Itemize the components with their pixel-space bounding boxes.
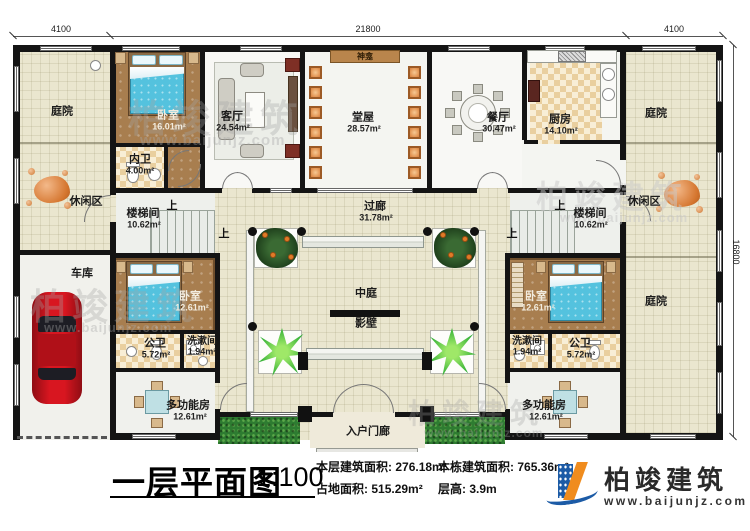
hall-chair [408, 166, 421, 179]
courtyard-divider [13, 142, 110, 144]
stone-dot [696, 206, 703, 213]
window [717, 230, 722, 272]
room-label-multi-l: 多功能房 [166, 401, 210, 412]
window [650, 434, 696, 439]
room-label-hall: 堂屋 [352, 113, 374, 124]
grass-left [218, 416, 300, 444]
hall-chair [309, 66, 322, 79]
fruit-dot [466, 254, 472, 260]
window [717, 60, 722, 102]
dim-top-center: 21800 [355, 24, 380, 34]
dim-top-left: 4100 [51, 24, 71, 34]
sink-icon [198, 356, 208, 366]
room-area-living: 24.54m² [216, 124, 250, 133]
title-underline [110, 496, 315, 498]
watermark-url: www.baijunjz.com [424, 426, 544, 440]
room-area-wash-r: 1.94m² [513, 348, 542, 357]
fruit-dot [448, 252, 454, 258]
column-icon [422, 352, 432, 370]
stair-up-label: 上 [555, 197, 566, 213]
room-area-stair-l: 10.62m² [127, 221, 161, 230]
column-icon [297, 227, 306, 236]
stove-icon [528, 80, 540, 102]
dining-chair [452, 91, 462, 101]
room-area-bedroom2: 12.61m² [175, 304, 209, 313]
room-area-bedroom1: 16.01m² [152, 123, 186, 132]
court-bench-top [302, 236, 424, 248]
nightstand [606, 261, 616, 273]
dining-chair [445, 108, 455, 118]
stat-floor-area: 本层建筑面积: 276.18m² [316, 458, 447, 475]
window [717, 302, 722, 346]
armchair-icon [240, 63, 264, 77]
sink-icon [126, 346, 137, 357]
column-icon [298, 352, 308, 370]
hall-chair [408, 86, 421, 99]
room-label-leisure-r: 休闲区 [628, 197, 661, 208]
garden-stone-icon [34, 176, 70, 203]
room-label-bedroom3: 卧室 [525, 292, 547, 303]
hall-chair [408, 106, 421, 119]
room-area-multi-r: 12.61m² [529, 413, 563, 422]
courtyard-top-left-floor [13, 45, 110, 255]
nightstand [536, 261, 546, 273]
courtyard-right-floor [626, 45, 723, 440]
column-icon [248, 227, 257, 236]
dimension-line-top [13, 36, 723, 37]
vent-hatch [558, 51, 586, 62]
hall-chair [408, 126, 421, 139]
stair-up-label: 上 [167, 197, 178, 213]
room-label-courtyard-br: 庭院 [645, 297, 667, 308]
stair-up-label: 上 [219, 225, 230, 241]
room-label-dining: 餐厅 [487, 113, 509, 124]
side-table [285, 58, 300, 72]
room-label-wash-l: 洗漱间 [187, 337, 217, 347]
room-label-multi-r: 多功能房 [522, 401, 566, 412]
room-label-courtyard-tl: 庭院 [51, 107, 73, 118]
hall-glazed-door [317, 188, 413, 193]
stair-up-label: 上 [507, 225, 518, 241]
kitchen-sink-icon [602, 68, 615, 81]
fruit-dot [440, 232, 446, 238]
stat-footprint-area: 占地面积: 515.29m² [316, 480, 423, 497]
window [14, 364, 19, 406]
room-label-inner-bath: 内卫 [129, 155, 151, 166]
dining-chair [452, 125, 462, 135]
room-area-pub-bath-r: 5.72m² [567, 351, 596, 360]
side-table [285, 144, 300, 158]
room-label-stair-l: 楼梯间 [127, 209, 160, 220]
window [132, 434, 176, 439]
room-label-garage: 车库 [71, 269, 93, 280]
window [122, 46, 180, 51]
floor-plan-page: 神龛 [0, 0, 750, 531]
courtyard-divider [626, 256, 723, 258]
stone-dot [28, 168, 35, 175]
fruit-dot [288, 254, 294, 260]
dining-table-inner [468, 103, 488, 123]
stone-dot [694, 174, 700, 180]
dining-chair [493, 91, 503, 101]
fruit-dot [262, 232, 268, 238]
court-bench-bottom [306, 348, 424, 360]
hall-chair [309, 146, 322, 159]
colonnade-rail-left [246, 230, 254, 412]
window [448, 46, 490, 51]
mp-chair [151, 418, 163, 428]
room-label-wash-r: 洗漱间 [512, 337, 542, 347]
room-label-courtyard-tr: 庭院 [645, 109, 667, 120]
room-area-wash-l: 1.94m² [188, 348, 217, 357]
scale-label: 1:100 [256, 462, 324, 493]
room-area-bedroom3: 12.61m² [521, 304, 555, 313]
column-icon [423, 227, 432, 236]
room-area-stair-r: 10.62m² [574, 221, 608, 230]
room-label-leisure-l: 休闲区 [70, 197, 103, 208]
fruit-dot [284, 236, 290, 242]
window [270, 188, 292, 193]
room-area-corridor: 31.78m² [359, 214, 393, 223]
brand-name: 柏竣建筑 [604, 460, 728, 497]
hall-chair [408, 66, 421, 79]
window [14, 158, 19, 204]
stone-dot [62, 170, 68, 176]
room-label-atrium: 中庭 [355, 289, 377, 300]
window [14, 66, 19, 112]
window [250, 412, 298, 417]
fruit-dot [270, 252, 276, 258]
window [642, 46, 696, 51]
window [717, 372, 722, 414]
room-area-dining: 30.47m² [482, 125, 516, 134]
room-area-kitchen: 14.10m² [544, 127, 578, 136]
room-label-stair-r: 楼梯间 [574, 209, 607, 220]
wardrobe-icon [511, 262, 524, 308]
stat-total-area: 本栋建筑面积: 765.36m² [438, 458, 569, 475]
hall-chair [309, 126, 322, 139]
fruit-dot [462, 236, 468, 242]
stat-storey-height: 层高: 3.9m [438, 480, 497, 497]
stone-dot [26, 200, 32, 206]
room-label-bedroom2: 卧室 [179, 292, 201, 303]
window [240, 46, 282, 51]
hall-chair [309, 106, 322, 119]
nightstand [116, 261, 126, 273]
room-label-porch: 入户门廊 [346, 427, 390, 438]
dining-chair [473, 84, 483, 94]
hall-chair [408, 146, 421, 159]
room-label-living: 客厅 [221, 112, 243, 123]
nightstand [183, 261, 193, 273]
window [544, 434, 588, 439]
mp-chair [578, 396, 588, 408]
room-label-pub-bath-l: 公卫 [144, 339, 166, 350]
column-icon [470, 227, 479, 236]
room-area-multi-l: 12.61m² [173, 413, 207, 422]
screen-wall-bar [330, 310, 400, 317]
stairs-left [150, 210, 215, 254]
room-label-kitchen: 厨房 [549, 115, 571, 126]
room-area-inner-bath: 4.00m² [126, 167, 155, 176]
kitchen-sink-icon [602, 88, 615, 101]
dim-top-right: 4100 [664, 24, 684, 34]
hall-chair [309, 166, 322, 179]
hall-chair [309, 86, 322, 99]
room-area-hall: 28.57m² [347, 125, 381, 134]
nightstand [115, 52, 126, 64]
column-icon [470, 322, 479, 331]
room-label-screen-wall: 影壁 [355, 319, 377, 330]
room-area-pub-bath-l: 5.72m² [142, 351, 171, 360]
shrine-label: 神龛 [357, 53, 373, 61]
window [14, 296, 19, 338]
brand-url: www.baijunjz.com [604, 494, 748, 508]
room-label-corridor: 过廊 [364, 202, 386, 213]
window [40, 46, 92, 51]
watermark-url: www.baijunjz.com [140, 132, 285, 149]
porch-column [298, 406, 312, 422]
window [717, 152, 722, 198]
nightstand [188, 52, 199, 64]
column-icon [248, 322, 257, 331]
room-label-pub-bath-r: 公卫 [569, 339, 591, 350]
dim-right: 16800 [731, 239, 741, 264]
dining-chair [473, 132, 483, 142]
garden-table [90, 60, 101, 71]
mp-chair [134, 396, 144, 408]
watermark-url: www.baijunjz.com [44, 320, 172, 335]
courtyard-divider [626, 142, 723, 144]
garage-door-dashed [17, 436, 107, 439]
room-label-bedroom1: 卧室 [157, 111, 179, 122]
